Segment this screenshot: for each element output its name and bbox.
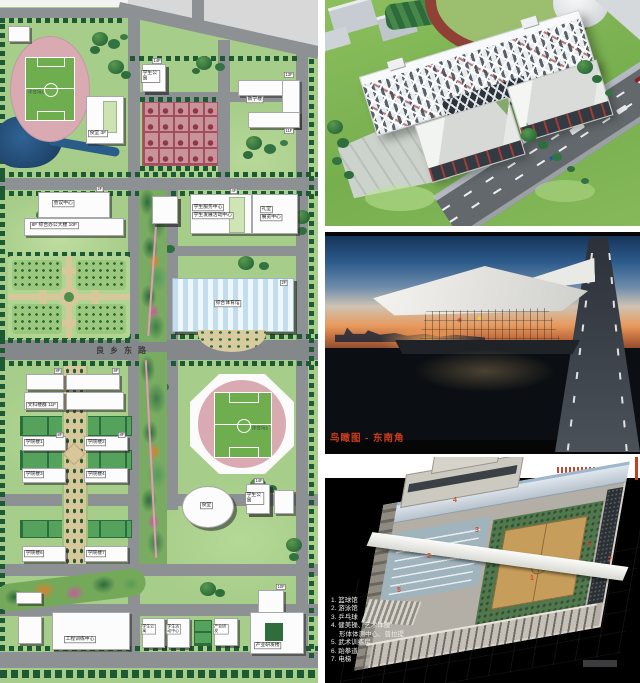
pitch-box-top <box>37 58 65 67</box>
tree-grove <box>92 32 108 46</box>
gymnasium-label: 综合体育馆 <box>214 300 241 307</box>
tree-grove <box>238 256 254 270</box>
college-3-label: 学院楼3 <box>24 471 44 478</box>
industry-cube-label: 产业研发 <box>213 624 229 634</box>
small-building <box>274 490 294 514</box>
render-aerial-night: 鸟瞰图 - 东南角 <box>325 232 640 454</box>
hedge-row <box>8 338 130 343</box>
road-vertical-c <box>218 40 230 102</box>
marker-5: 5 <box>397 587 401 594</box>
liberal-arts-building <box>26 374 64 390</box>
render-caption: 鸟瞰图 - 东南角 <box>330 430 404 444</box>
industry-rd-label: 产业研发楼 <box>254 642 281 649</box>
canteen-north-label: 食堂 3F <box>88 130 108 137</box>
legend: 1. 篮球馆 2. 游泳馆 3. 乒乓球 4. 健美操、艺术体操 形体体测中心、… <box>331 597 404 665</box>
industry-floors: 10F <box>276 584 286 590</box>
legend-item: 2. 游泳馆 <box>331 605 404 613</box>
road-vertical-h <box>166 360 178 510</box>
stadium-2-label: 体育场2 <box>252 424 268 431</box>
map-top-margin <box>0 0 130 7</box>
small-building <box>8 26 30 42</box>
garden-parterre <box>76 304 126 334</box>
road-bottom <box>0 652 318 668</box>
street-trees <box>327 120 343 134</box>
dorm-south-floors: 14F <box>254 478 264 484</box>
garden-parterre <box>12 260 62 290</box>
pitch-box-top <box>229 393 259 403</box>
plaza-glow <box>415 350 555 392</box>
garden-parterre <box>76 260 126 290</box>
campus-master-plan: 良乡东路 <box>0 0 318 683</box>
marker-2: 2 <box>427 553 431 560</box>
tree-grove <box>200 582 216 596</box>
liberal-arts-building <box>66 392 124 410</box>
legend-item: 5. 武术训练房 <box>331 639 404 647</box>
sports-courts <box>194 620 212 646</box>
garden-center <box>59 287 79 307</box>
tree-grove <box>196 56 212 70</box>
student-service-label-1: 学生服务中心 <box>192 204 224 211</box>
conference-floors: 2F <box>96 186 104 192</box>
dorm-cube-label: 学生公寓 <box>141 624 156 634</box>
college-1-label: 学院楼1 <box>24 439 44 446</box>
activity-cube-label: 学生活动中心 <box>166 624 181 634</box>
library-cube <box>152 196 178 224</box>
liberal-floors: 8F <box>54 368 62 374</box>
boundary-road-top <box>0 8 128 18</box>
gymnasium-floors: 2F <box>280 280 288 286</box>
pitch-center-circle <box>237 419 251 433</box>
college-floors: 8F <box>118 432 126 438</box>
legend-item: 6. 跆拳道 <box>331 648 404 656</box>
road-horizontal-mid <box>0 178 318 190</box>
pitch-center-circle <box>44 83 58 97</box>
liberal-arts-building <box>66 374 120 390</box>
truck <box>616 105 628 115</box>
hedge-row <box>0 18 125 23</box>
teaching-floors-13: 13F <box>284 72 294 78</box>
stadium-1-track <box>10 36 90 142</box>
hedge-east <box>309 58 314 658</box>
college-6-label: 学院楼6 <box>24 550 44 557</box>
small-building <box>18 616 42 644</box>
render-aerial-day <box>325 0 640 226</box>
auditorium-label-2: 展览中心 <box>260 214 282 221</box>
stadium-1-label: 体育场1 <box>28 88 44 95</box>
liberal-arts-label: 文科楼群 11F <box>26 402 58 409</box>
formal-garden <box>8 256 130 338</box>
canteen-south-label: 食堂 <box>200 502 213 509</box>
marker-7: 7 <box>608 557 612 564</box>
industry-tower <box>258 590 284 614</box>
road-name-label: 良乡东路 <box>96 345 152 356</box>
legend-item: 4. 健美操、艺术体操 <box>331 622 404 630</box>
red-rule <box>635 457 638 480</box>
teaching-label: 教学楼 <box>246 96 264 103</box>
lawn-highlight <box>365 185 435 211</box>
road-horizontal-j <box>0 564 318 576</box>
small-building <box>16 592 42 604</box>
marker-1: 1 <box>530 575 534 582</box>
stadium-2-stand <box>190 374 294 474</box>
marker-3: 3 <box>475 527 479 534</box>
road-horizontal-f <box>178 246 296 256</box>
garden-center-planting <box>64 292 74 302</box>
teaching-building-south <box>248 112 300 128</box>
auditorium-label-1: 礼堂 <box>260 206 273 213</box>
student-service-label-2: 学生发展活动中心 <box>192 212 234 219</box>
college-7-label: 学院楼7 <box>86 550 106 557</box>
pitch-box-bottom <box>229 447 259 457</box>
dorm-north-label: 学生公寓 <box>141 70 160 83</box>
hedge-row <box>0 670 318 678</box>
pitch-box-bottom <box>37 111 65 120</box>
courtyard <box>265 623 283 641</box>
marker-6: 6 <box>587 541 591 548</box>
hedge-row <box>140 166 216 171</box>
screenshot-collage: 良乡东路 <box>0 0 640 683</box>
lawn-highlight <box>535 180 595 202</box>
college-4-label: 学院楼4 <box>86 471 106 478</box>
green-roof <box>103 101 117 133</box>
teaching-floors-11: 11F <box>284 128 294 134</box>
basketball-courts <box>142 102 218 166</box>
legend-item: 7. 电梯 <box>331 656 404 664</box>
garden-parterre <box>12 304 62 334</box>
tree-grove <box>108 60 124 74</box>
road-vertical-a <box>128 16 140 192</box>
training-center-label: 工程训练中心 <box>64 636 96 643</box>
service-floors: 4F <box>230 188 238 194</box>
office-label: 8F 综合办公大楼 10F <box>30 222 79 229</box>
street-trees <box>521 128 537 142</box>
street-trees <box>577 60 593 74</box>
render-cutaway: 1 2 3 4 5 6 7 1. 篮球馆 2. 游泳馆 3. 乒乓球 4. 健美… <box>325 457 640 683</box>
tree-grove <box>246 136 262 150</box>
background-building <box>325 26 351 51</box>
caption-small-illegible <box>583 660 617 667</box>
conference-label: 会议中心 <box>52 200 74 207</box>
liberal-floors: 8F <box>112 368 120 374</box>
marker-4: 4 <box>453 497 457 504</box>
college-2-label: 学院楼2 <box>86 439 106 446</box>
dorm-south-label: 学生公寓 <box>245 492 264 505</box>
legend-item-continued: 形体体测中心、普拉提 <box>339 631 404 639</box>
tree-grove <box>286 538 302 552</box>
training-center-building <box>52 612 130 650</box>
hedge-row <box>0 172 318 177</box>
dorm-north-floors: 14F <box>152 58 162 64</box>
college-floors: 8F <box>56 432 64 438</box>
